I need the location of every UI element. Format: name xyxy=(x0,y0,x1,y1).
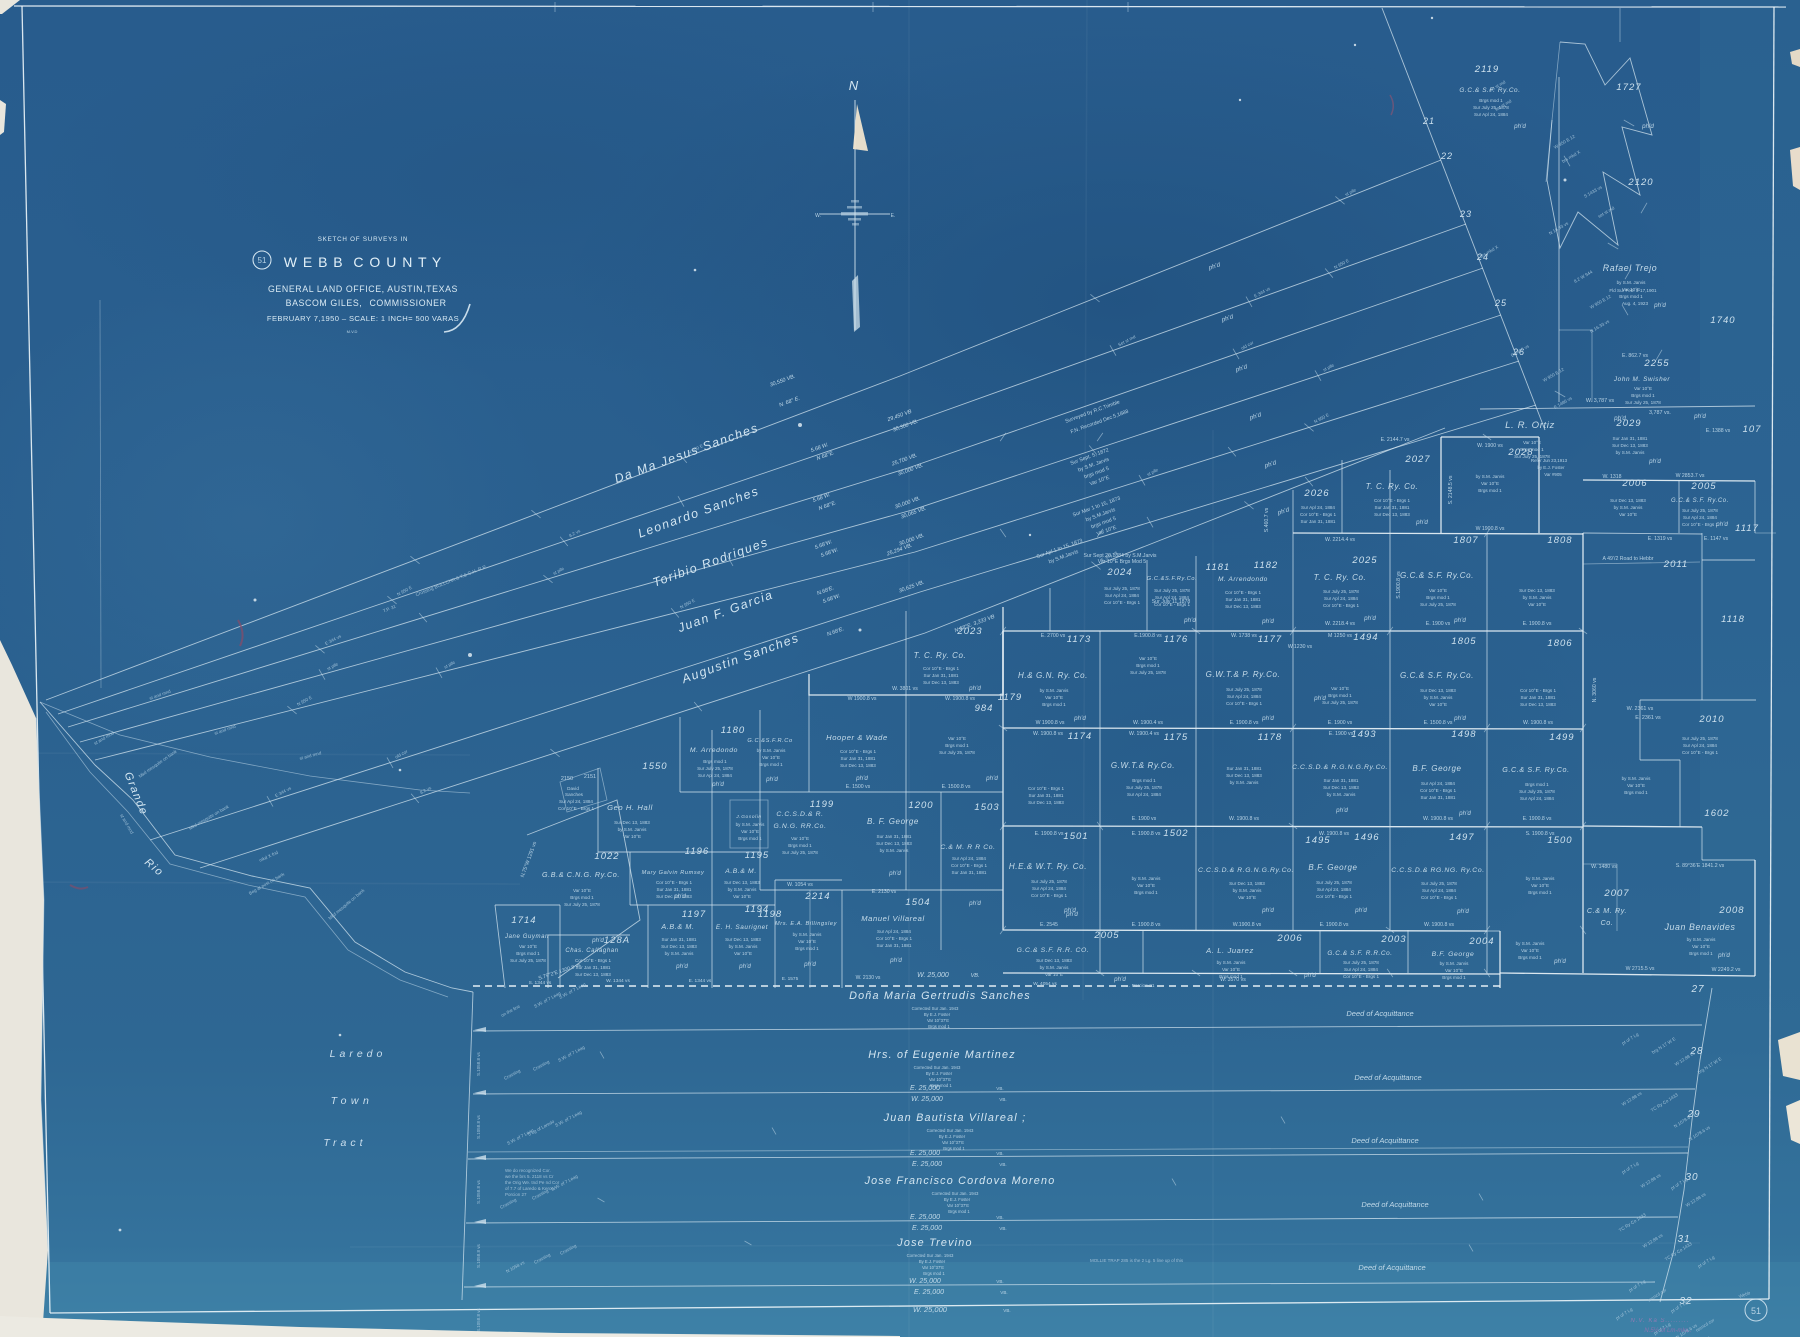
svg-text:ph’d: ph’d xyxy=(1456,908,1469,915)
svg-text:G.C.& S.F. R.R. CO.: G.C.& S.F. R.R. CO. xyxy=(1017,947,1090,954)
svg-text:Corrected Sur Jan. 1943: Corrected Sur Jan. 1943 xyxy=(927,1128,974,1133)
svg-text:Var 10°E: Var 10°E xyxy=(1139,656,1157,661)
svg-text:Mary Galvin Rumsey: Mary Galvin Rumsey xyxy=(642,870,705,876)
svg-text:1740: 1740 xyxy=(1710,315,1735,326)
svg-text:S. 89°36’E 1841.2 vs: S. 89°36’E 1841.2 vs xyxy=(1676,863,1725,869)
svg-text:1496: 1496 xyxy=(1354,832,1379,843)
svg-text:Town: Town xyxy=(331,1095,374,1107)
svg-text:E. H. Saurignet: E. H. Saurignet xyxy=(716,924,768,931)
svg-text:Corrected Sur Jan. 1943: Corrected Sur Jan. 1943 xyxy=(907,1253,954,1258)
svg-text:Brgs mod 1: Brgs mod 1 xyxy=(795,946,819,951)
svg-text:1176: 1176 xyxy=(1164,634,1188,645)
svg-text:Var 10°E: Var 10°E xyxy=(1445,968,1463,973)
svg-text:Cor 10°E - Brgs 1: Cor 10°E - Brgs 1 xyxy=(1682,750,1718,755)
svg-text:Sur July 11,1878: Sur July 11,1878 xyxy=(1152,599,1191,605)
svg-text:Cor 10°E - Brgs 1: Cor 10°E - Brgs 1 xyxy=(876,936,912,941)
svg-text:Sur Apl 24, 1884: Sur Apl 24, 1884 xyxy=(1317,887,1351,892)
svg-text:Cor 10°E - Brgs 1: Cor 10°E - Brgs 1 xyxy=(1031,893,1067,898)
svg-text:Deed of Acquittance: Deed of Acquittance xyxy=(1346,1009,1413,1018)
svg-text:2027: 2027 xyxy=(1404,454,1430,465)
svg-text:2214: 2214 xyxy=(804,891,830,902)
svg-text:Sur July 25, 1878: Sur July 25, 1878 xyxy=(1154,588,1190,593)
svg-text:1727: 1727 xyxy=(1616,82,1641,93)
svg-text:Brgs mod 1: Brgs mod 1 xyxy=(928,1024,950,1029)
svg-text:S.1900.8 vs: S.1900.8 vs xyxy=(1396,571,1402,599)
svg-text:ph’d: ph’d xyxy=(1453,617,1466,624)
svg-text:Sur July 25, 1878: Sur July 25, 1878 xyxy=(510,958,546,963)
svg-text:Var 10°E: Var 10°E xyxy=(623,834,641,839)
svg-text:We do recognized Cor.: We do recognized Cor. xyxy=(505,1168,551,1173)
svg-text:W. 1900.8 vs: W. 1900.8 vs xyxy=(1423,816,1453,822)
svg-text:1805: 1805 xyxy=(1451,636,1476,647)
svg-text:Sur Dec 13, 1883: Sur Dec 13, 1883 xyxy=(1612,443,1648,448)
svg-text:Sur Dec 13, 1883: Sur Dec 13, 1883 xyxy=(1323,785,1359,790)
svg-text:Brgs mod 1: Brgs mod 1 xyxy=(1134,890,1158,895)
svg-text:Sur Dec 13, 1883: Sur Dec 13, 1883 xyxy=(923,680,959,685)
svg-text:W E B B C O U N T Y: W E B B C O U N T Y xyxy=(284,254,442,270)
svg-text:Sur July 25, 1878: Sur July 25, 1878 xyxy=(1104,586,1140,591)
svg-text:Sur July 25, 1878: Sur July 25, 1878 xyxy=(782,850,818,855)
svg-text:Sur Apl 24, 1884: Sur Apl 24, 1884 xyxy=(1422,888,1456,893)
svg-text:ph’d: ph’d xyxy=(889,957,902,964)
svg-text:by S.M. Jarvis: by S.M. Jarvis xyxy=(1040,688,1070,693)
svg-text:B.F. George: B.F. George xyxy=(1412,764,1461,773)
svg-text:B.F. George: B.F. George xyxy=(1308,863,1357,872)
svg-text:W. 2218.4 vs: W. 2218.4 vs xyxy=(1325,621,1355,627)
svg-text:ph’d: ph’d xyxy=(803,961,816,968)
svg-text:COMMISSIONER: COMMISSIONER xyxy=(369,298,446,308)
svg-text:by S.M. Jarvis: by S.M. Jarvis xyxy=(1476,474,1506,479)
svg-text:Sur July 25, 1878: Sur July 25, 1878 xyxy=(939,750,975,755)
svg-text:ph’d: ph’d xyxy=(1183,617,1196,624)
svg-text:E. 2144.7 vs: E. 2144.7 vs xyxy=(1381,437,1410,443)
svg-text:Sur Dec 13, 1883: Sur Dec 13, 1883 xyxy=(575,972,611,977)
svg-text:Var 10°E: Var 10°E xyxy=(1045,972,1063,977)
svg-text:Sur Jan 31, 1881: Sur Jan 31, 1881 xyxy=(924,673,959,678)
svg-text:S.1058.8 vs: S.1058.8 vs xyxy=(476,1179,481,1204)
svg-text:Corrected Sur Jan. 1943: Corrected Sur Jan. 1943 xyxy=(914,1065,961,1070)
svg-text:A.B.& M.: A.B.& M. xyxy=(660,922,694,931)
svg-text:H.E.& W.T. Rу. Co.: H.E.& W.T. Rу. Co. xyxy=(1009,862,1087,871)
svg-text:E. 1900.8 vs: E. 1900.8 vs xyxy=(1035,831,1064,837)
svg-text:1181: 1181 xyxy=(1206,562,1230,573)
svg-text:1180: 1180 xyxy=(721,725,745,736)
svg-text:Sur July 25, 1878: Sur July 25, 1878 xyxy=(1682,508,1718,513)
svg-text:3,787 vs.: 3,787 vs. xyxy=(1649,410,1671,416)
svg-text:Sur July 25, 1878: Sur July 25, 1878 xyxy=(1343,960,1379,965)
svg-text:Brgs mod 1: Brgs mod 1 xyxy=(948,1209,970,1214)
svg-text:by S.M. Jarvis: by S.M. Jarvis xyxy=(1526,876,1556,881)
svg-text:C.C.S.D.& R.G.N.G.Rу.Co.: C.C.S.D.& R.G.N.G.Rу.Co. xyxy=(1292,764,1388,771)
svg-text:Brgs mod 1: Brgs mod 1 xyxy=(788,843,812,848)
svg-text:ph’d: ph’d xyxy=(1335,807,1348,814)
svg-text:51: 51 xyxy=(258,256,267,265)
svg-text:B. F. George: B. F. George xyxy=(867,817,919,826)
svg-text:Sur Jan 31, 1881: Sur Jan 31, 1881 xyxy=(1029,793,1064,798)
svg-text:H.& G.N. Rу. Co.: H.& G.N. Rу. Co. xyxy=(1018,671,1088,680)
svg-text:E. 25,000: E. 25,000 xyxy=(910,1214,940,1221)
svg-text:W. 1900.8 vs: W. 1900.8 vs xyxy=(1319,831,1349,837)
svg-text:by S.M. Jarvis: by S.M. Jarvis xyxy=(1040,965,1070,970)
svg-text:1502: 1502 xyxy=(1163,828,1188,839)
svg-text:Var 10°E: Var 10°E xyxy=(1429,588,1447,593)
svg-text:Brgs mod 1: Brgs mod 1 xyxy=(1426,595,1450,600)
svg-text:A.B.& M.: A.B.& M. xyxy=(724,868,757,875)
svg-text:G.C.& S.F. Rу.Co.: G.C.& S.F. Rу.Co. xyxy=(1502,765,1570,774)
svg-text:Var 10°37’E: Var 10°37’E xyxy=(942,1140,964,1145)
svg-text:Sur Dec 13, 1883: Sur Dec 13, 1883 xyxy=(1519,588,1555,593)
svg-text:W. 1900.8 vs: W. 1900.8 vs xyxy=(1033,731,1063,737)
svg-text:Brgs mod 1: Brgs mod 1 xyxy=(1619,294,1643,299)
svg-text:S. 2148.5 vs: S. 2148.5 vs xyxy=(1448,475,1454,504)
svg-text:Sur July 25, 1878: Sur July 25, 1878 xyxy=(697,766,733,771)
svg-text:ph’d: ph’d xyxy=(1715,521,1728,528)
svg-text:E. 2130 vs: E. 2130 vs xyxy=(872,889,897,895)
svg-text:Sur Dec 13, 1883: Sur Dec 13, 1883 xyxy=(1225,604,1261,609)
svg-text:by E.J. Foster: by E.J. Foster xyxy=(1537,465,1565,470)
svg-text:ph’d: ph’d xyxy=(888,870,901,877)
svg-text:VB.: VB. xyxy=(1003,1308,1010,1313)
svg-text:ph’d: ph’d xyxy=(1641,123,1654,130)
svg-text:Corrected Sur Jan. 1943: Corrected Sur Jan. 1943 xyxy=(932,1191,979,1196)
svg-text:E. 1575: E. 1575 xyxy=(782,976,799,982)
svg-text:ph’d: ph’d xyxy=(1453,715,1466,722)
svg-text:Var 10°E: Var 10°E xyxy=(791,836,809,841)
svg-text:Sur Dec 13, 1883: Sur Dec 13, 1883 xyxy=(1226,773,1262,778)
svg-text:ph’d: ph’d xyxy=(1261,907,1274,914)
svg-text:ph’d: ph’d xyxy=(1513,123,1526,130)
svg-text:M. Arrendondo: M. Arrendondo xyxy=(1218,576,1268,583)
svg-text:ph’d: ph’d xyxy=(1313,695,1326,702)
svg-text:M.V.D: M.V.D xyxy=(347,329,358,334)
svg-text:Var 10°E: Var 10°E xyxy=(762,755,780,760)
svg-text:1174: 1174 xyxy=(1068,731,1092,742)
svg-text:By E.J. Foster: By E.J. Foster xyxy=(944,1197,971,1202)
svg-text:2151: 2151 xyxy=(584,774,596,780)
svg-text:by S.M. Jarvis: by S.M. Jarvis xyxy=(1230,780,1260,785)
svg-text:ph’d: ph’d xyxy=(968,900,981,907)
svg-text:27: 27 xyxy=(1690,984,1704,995)
svg-text:Sur Apl 24, 1884: Sur Apl 24, 1884 xyxy=(1344,967,1378,972)
svg-text:W. 2130 vs: W. 2130 vs xyxy=(856,975,881,981)
svg-text:2004: 2004 xyxy=(1468,936,1494,947)
svg-text:1808: 1808 xyxy=(1547,535,1572,546)
svg-text:1179: 1179 xyxy=(998,692,1022,703)
svg-text:Sur Dec 13, 1883: Sur Dec 13, 1883 xyxy=(1374,512,1410,517)
svg-text:W. 1900.8 vs: W. 1900.8 vs xyxy=(945,696,975,702)
svg-text:Sur Apl 24, 1884: Sur Apl 24, 1884 xyxy=(877,929,911,934)
svg-text:Cor 10°E - Brgs 1: Cor 10°E - Brgs 1 xyxy=(951,863,987,868)
svg-text:Var 10°E: Var 10°E xyxy=(1238,895,1256,900)
svg-text:Brgs mod 1: Brgs mod 1 xyxy=(1136,663,1160,668)
svg-text:2026: 2026 xyxy=(1303,488,1329,499)
svg-text:Deed of Acquittance: Deed of Acquittance xyxy=(1361,1200,1428,1209)
svg-text:984: 984 xyxy=(975,703,994,714)
svg-text:the Orig We. tnd Pe nd Cor: the Orig We. tnd Pe nd Cor xyxy=(505,1180,560,1185)
svg-text:E. 862.7 vs: E. 862.7 vs xyxy=(1622,353,1648,359)
svg-text:Sur Jan 31, 1881: Sur Jan 31, 1881 xyxy=(1227,766,1262,771)
svg-text:Rafael Trejo: Rafael Trejo xyxy=(1603,263,1657,273)
svg-text:Sur Dec 13, 1883: Sur Dec 13, 1883 xyxy=(1520,702,1556,707)
svg-text:W 1900.8 vs: W 1900.8 vs xyxy=(1036,720,1065,726)
svg-text:M 1250 vs: M 1250 vs xyxy=(1328,633,1352,639)
svg-text:Brgs mod 1: Brgs mod 1 xyxy=(1328,693,1352,698)
svg-text:ph’d: ph’d xyxy=(1717,952,1730,959)
svg-text:S.460.7 vs: S.460.7 vs xyxy=(1264,507,1270,532)
svg-text:by S.M. Jarvis: by S.M. Jarvis xyxy=(757,748,787,753)
svg-text:Sur July 25, 1878: Sur July 25, 1878 xyxy=(1316,880,1352,885)
svg-text:1118: 1118 xyxy=(1721,614,1745,625)
svg-text:W. 3570 vs: W. 3570 vs xyxy=(1220,977,1246,983)
svg-text:E. 1900.8 vs: E. 1900.8 vs xyxy=(1132,922,1161,928)
svg-text:1503: 1503 xyxy=(974,802,999,813)
svg-text:2150: 2150 xyxy=(561,776,573,782)
svg-text:E. 25,000: E. 25,000 xyxy=(912,1225,942,1232)
svg-text:by S.M. Jarvis: by S.M. Jarvis xyxy=(665,951,695,956)
svg-text:ph’d: ph’d xyxy=(738,963,751,970)
svg-text:1117: 1117 xyxy=(1735,523,1759,534)
svg-text:W. 1900.8 vs: W. 1900.8 vs xyxy=(1229,816,1259,822)
svg-text:M. Arredondo: M. Arredondo xyxy=(690,747,738,754)
svg-text:1497: 1497 xyxy=(1449,832,1474,843)
svg-text:David: David xyxy=(567,786,579,791)
svg-text:Geo H. Hall: Geo H. Hall xyxy=(607,803,653,812)
svg-text:W. 2214.4 vs: W. 2214.4 vs xyxy=(1325,537,1355,543)
svg-text:Sur Dec 13, 1883: Sur Dec 13, 1883 xyxy=(724,880,760,885)
svg-text:2007: 2007 xyxy=(1603,888,1629,899)
svg-text:C.& M. Rу.: C.& M. Rу. xyxy=(1587,906,1627,915)
svg-text:Var 10°E: Var 10°E xyxy=(1528,602,1546,607)
svg-text:by S.M. Jarvis: by S.M. Jarvis xyxy=(1440,961,1470,966)
svg-text:Hooper & Wade: Hooper & Wade xyxy=(826,733,888,742)
svg-text:Sur Jan 31, 1881: Sur Jan 31, 1881 xyxy=(1421,795,1456,800)
svg-text:Chas. Callaghan: Chas. Callaghan xyxy=(565,948,618,954)
svg-text:Refer Jun 23,1913: Refer Jun 23,1913 xyxy=(1531,458,1568,463)
svg-text:Sur Apl 24, 1884: Sur Apl 24, 1884 xyxy=(559,799,593,804)
svg-text:ph’d: ph’d xyxy=(1073,715,1086,722)
svg-text:Sur Jan 31, 1881: Sur Jan 31, 1881 xyxy=(877,943,912,948)
svg-text:Sur Apl 24, 1884: Sur Apl 24, 1884 xyxy=(1683,515,1717,520)
svg-text:ph’d: ph’d xyxy=(855,775,868,782)
svg-text:W. 25,000: W. 25,000 xyxy=(917,972,949,979)
svg-text:Brgs mod 1: Brgs mod 1 xyxy=(1689,951,1713,956)
svg-text:E. 25,000: E. 25,000 xyxy=(914,1289,944,1296)
svg-text:Var 10°E Brgs Mod 5: Var 10°E Brgs Mod 5 xyxy=(1098,559,1147,565)
svg-text:E. 1344 vs: E. 1344 vs xyxy=(689,978,712,984)
svg-text:Brgs mod 1: Brgs mod 1 xyxy=(1042,702,1066,707)
svg-text:E. 1900.8 vs: E. 1900.8 vs xyxy=(1132,831,1161,837)
svg-text:N: N xyxy=(849,78,859,93)
svg-text:Sur July 25, 1878: Sur July 25, 1878 xyxy=(1126,785,1162,790)
svg-text:Cor 10°E - Brgs 1: Cor 10°E - Brgs 1 xyxy=(1682,522,1718,527)
svg-text:Sur Dec 13, 1883: Sur Dec 13, 1883 xyxy=(614,820,650,825)
svg-text:Brgs mod 1: Brgs mod 1 xyxy=(1624,790,1648,795)
svg-text:Cor 10°E - Brgs 1: Cor 10°E - Brgs 1 xyxy=(1316,894,1352,899)
svg-text:Hrs. of Eugenie Martinez: Hrs. of Eugenie Martinez xyxy=(868,1049,1016,1061)
svg-text:Jane Guyman: Jane Guyman xyxy=(504,934,549,940)
svg-text:E. 2545: E. 2545 xyxy=(1040,922,1058,928)
svg-text:By E.J. Foster: By E.J. Foster xyxy=(919,1259,946,1264)
svg-text:W. 1054 vs: W. 1054 vs xyxy=(787,882,813,888)
svg-text:Cor 10°E - Brgs 1: Cor 10°E - Brgs 1 xyxy=(1104,600,1140,605)
svg-text:2024: 2024 xyxy=(1106,567,1132,578)
svg-text:VB.: VB. xyxy=(996,1215,1003,1220)
svg-text:by S.M. Jarvis: by S.M. Jarvis xyxy=(793,932,823,937)
svg-text:1198: 1198 xyxy=(758,909,782,920)
svg-text:Cor 10°E - Brgs 1: Cor 10°E - Brgs 1 xyxy=(1374,498,1410,503)
svg-text:C.C.S.D.& R.: C.C.S.D.& R. xyxy=(776,811,823,818)
svg-text:by S.M. Jarvis: by S.M. Jarvis xyxy=(1523,595,1553,600)
svg-text:Sur Dec 13, 1883: Sur Dec 13, 1883 xyxy=(1420,688,1456,693)
svg-text:Sur July 25, 1878: Sur July 25, 1878 xyxy=(1130,670,1166,675)
svg-text:Var 10°37’E: Var 10°37’E xyxy=(947,1203,969,1208)
svg-text:Manuel Villareal: Manuel Villareal xyxy=(861,914,925,923)
svg-text:1499: 1499 xyxy=(1549,732,1574,743)
svg-text:Sur Jan 31, 1881: Sur Jan 31, 1881 xyxy=(1613,436,1648,441)
svg-text:Var 10°E: Var 10°E xyxy=(948,736,966,741)
svg-text:Sur Apl 24, 1884: Sur Apl 24, 1884 xyxy=(1032,886,1066,891)
svg-text:by S.M. Jarvis: by S.M. Jarvis xyxy=(729,944,759,949)
svg-text:John M. Swisher: John M. Swisher xyxy=(1613,376,1671,383)
svg-text:Cor 10°E - Brgs 1: Cor 10°E - Brgs 1 xyxy=(840,749,876,754)
svg-text:2023: 2023 xyxy=(956,626,982,637)
svg-text:Var 10°E: Var 10°E xyxy=(733,894,751,899)
svg-text:by S.M. Jarvis: by S.M. Jarvis xyxy=(1132,876,1162,881)
svg-text:N.V. Ka S.........: N.V. Ka S......... xyxy=(1631,1318,1690,1324)
svg-text:E. 1900 vs: E. 1900 vs xyxy=(1132,816,1157,822)
svg-text:Brgs mod 1: Brgs mod 1 xyxy=(1518,955,1542,960)
svg-text:S.1058.8 vs: S.1058.8 vs xyxy=(476,1307,481,1332)
svg-text:E.1900.8 vs: E.1900.8 vs xyxy=(1134,633,1162,639)
svg-text:ph’d: ph’d xyxy=(1261,618,1274,625)
svg-text:Var 10°E: Var 10°E xyxy=(1137,883,1155,888)
svg-text:by S.M. Jarvis: by S.M. Jarvis xyxy=(1217,960,1247,965)
svg-text:by S.M. Jarvis: by S.M. Jarvis xyxy=(1516,941,1546,946)
svg-text:Sur Jan 31, 1881: Sur Jan 31, 1881 xyxy=(1521,695,1556,700)
svg-text:ph’d: ph’d xyxy=(1303,972,1316,979)
svg-text:VB.: VB. xyxy=(996,1151,1003,1156)
svg-text:W. 1900 vs: W. 1900 vs xyxy=(1477,443,1503,449)
svg-text:Tract: Tract xyxy=(323,1137,366,1149)
svg-text:E. 1147 vs: E. 1147 vs xyxy=(1704,536,1729,542)
svg-text:S.1058.8 vs: S.1058.8 vs xyxy=(476,1243,481,1268)
svg-text:2006: 2006 xyxy=(1276,933,1302,944)
svg-text:2120: 2120 xyxy=(1627,177,1653,188)
svg-text:B.F. George: B.F. George xyxy=(1432,951,1475,958)
svg-text:Brgs mod 1: Brgs mod 1 xyxy=(703,759,727,764)
svg-text:W 1900.8 vs: W 1900.8 vs xyxy=(848,696,877,702)
svg-text:Laredo: Laredo xyxy=(330,1048,387,1060)
svg-text:1195: 1195 xyxy=(745,850,769,861)
svg-text:Cor 10°E - Brgs 1: Cor 10°E - Brgs 1 xyxy=(1520,688,1556,693)
svg-text:Brgs mod 1: Brgs mod 1 xyxy=(1442,975,1466,980)
svg-text:ph’d: ph’d xyxy=(1693,413,1706,420)
svg-text:Sur Apl 24, 1884: Sur Apl 24, 1884 xyxy=(1127,792,1161,797)
svg-text:1199: 1199 xyxy=(810,799,834,810)
svg-text:Brgs mod 1: Brgs mod 1 xyxy=(738,836,762,841)
svg-text:Brgs mod 1: Brgs mod 1 xyxy=(516,951,540,956)
svg-text:Sur July 25, 1878: Sur July 25, 1878 xyxy=(1031,879,1067,884)
svg-text:2119: 2119 xyxy=(1474,64,1499,75)
svg-text:by S.M. Jarvis: by S.M. Jarvis xyxy=(1617,280,1647,285)
svg-text:Brgs mod 1: Brgs mod 1 xyxy=(923,1271,945,1276)
svg-text:ph’d: ph’d xyxy=(1261,715,1274,722)
svg-text:Var 10°E: Var 10°E xyxy=(1627,783,1645,788)
svg-text:Sur Jan 31, 1881: Sur Jan 31, 1881 xyxy=(576,965,611,970)
svg-text:Juan Benavides: Juan Benavides xyxy=(1663,922,1735,932)
svg-text:MOLLIE TRAP 285 is the 2 Lg. 5: MOLLIE TRAP 285 is the 2 Lg. 5 line up o… xyxy=(1090,1258,1184,1263)
svg-text:Sur Apl 24, 1884: Sur Apl 24, 1884 xyxy=(952,856,986,861)
svg-text:W.1230 vs: W.1230 vs xyxy=(1288,644,1313,650)
svg-text:Sur Jan 31, 1881: Sur Jan 31, 1881 xyxy=(1324,778,1359,783)
svg-text:N. 3060 vs: N. 3060 vs xyxy=(1592,677,1598,702)
svg-text:E. 1900.8 vs: E. 1900.8 vs xyxy=(1230,720,1259,726)
svg-text:E. 2700 vs: E. 2700 vs xyxy=(1041,633,1066,639)
svg-text:VB.: VB. xyxy=(996,1279,1003,1284)
svg-text:Deed of Acquittance: Deed of Acquittance xyxy=(1351,1136,1418,1145)
svg-text:by S.M. Jarvis: by S.M. Jarvis xyxy=(618,827,648,832)
svg-text:Brgs mod 1: Brgs mod 1 xyxy=(1631,393,1655,398)
svg-text:1498: 1498 xyxy=(1451,729,1476,740)
svg-text:Var 10°37’E: Var 10°37’E xyxy=(929,1077,951,1082)
svg-text:Var 10°E: Var 10°E xyxy=(1692,944,1710,949)
svg-text:Sur Apl 24, 1884: Sur Apl 24, 1884 xyxy=(1105,593,1139,598)
svg-text:ph’d: ph’d xyxy=(1415,519,1428,526)
svg-text:1807: 1807 xyxy=(1453,535,1478,546)
svg-text:G.C.&S.F.R.Co: G.C.&S.F.R.Co xyxy=(747,738,792,744)
svg-text:G.B.& C.N.G. Rу.Co.: G.B.& C.N.G. Rу.Co. xyxy=(542,870,620,879)
svg-text:SKETCH OF SURVEYS IN: SKETCH OF SURVEYS IN xyxy=(318,236,409,243)
svg-text:23: 23 xyxy=(1459,209,1472,219)
svg-text:Sur Jan 31, 1881: Sur Jan 31, 1881 xyxy=(877,834,912,839)
svg-text:ph’d: ph’d xyxy=(765,776,778,783)
svg-text:W 1900.8 vs: W 1900.8 vs xyxy=(1476,526,1505,532)
svg-text:E.: E. xyxy=(891,213,896,219)
svg-text:W.: W. xyxy=(815,213,821,219)
svg-text:2008: 2008 xyxy=(1718,905,1744,916)
svg-text:E. 1900 vs: E. 1900 vs xyxy=(1426,621,1451,627)
svg-text:Brgs mod 1: Brgs mod 1 xyxy=(759,762,783,767)
svg-text:W. 2361 vs: W. 2361 vs xyxy=(1627,706,1654,712)
svg-text:By E.J. Foster: By E.J. Foster xyxy=(926,1071,953,1076)
svg-text:W. 1480 vs: W. 1480 vs xyxy=(1591,864,1617,870)
svg-text:Var 10°E: Var 10°E xyxy=(1521,948,1539,953)
svg-text:E. 2361 vs: E. 2361 vs xyxy=(1635,715,1661,721)
svg-text:1196: 1196 xyxy=(685,846,709,857)
svg-text:Brgs mod 1: Brgs mod 1 xyxy=(945,743,969,748)
svg-text:ph’d: ph’d xyxy=(675,963,688,970)
svg-text:Cor 10°E - Brgs 1: Cor 10°E - Brgs 1 xyxy=(1343,974,1379,979)
svg-text:Cor 10°E - Brgs 1: Cor 10°E - Brgs 1 xyxy=(1420,788,1456,793)
svg-text:Sur July 25, 1878: Sur July 25, 1878 xyxy=(564,902,600,907)
svg-text:Var 10°E: Var 10°E xyxy=(1481,481,1499,486)
svg-text:Brgs mod 1: Brgs mod 1 xyxy=(1132,778,1156,783)
svg-text:1022: 1022 xyxy=(594,851,619,862)
svg-text:1177: 1177 xyxy=(1258,634,1282,645)
svg-text:ph’d: ph’d xyxy=(1613,415,1626,422)
svg-text:by S.M. Jarvis: by S.M. Jarvis xyxy=(736,822,766,827)
svg-text:Sur July 25, 1878: Sur July 25, 1878 xyxy=(1226,687,1262,692)
svg-text:VB.: VB. xyxy=(996,1086,1003,1091)
svg-text:E. 1900 vs: E. 1900 vs xyxy=(1328,720,1353,726)
svg-text:1806: 1806 xyxy=(1547,638,1572,649)
svg-text:Sur July 25, 1878: Sur July 25, 1878 xyxy=(1519,789,1555,794)
svg-text:E. 1500 vs: E. 1500 vs xyxy=(846,784,871,790)
svg-text:E. 25,000: E. 25,000 xyxy=(910,1085,940,1092)
svg-text:Sur Jan 31, 1881: Sur Jan 31, 1881 xyxy=(1226,597,1261,602)
svg-text:Sur Apl 24, 1884: Sur Apl 24, 1884 xyxy=(698,773,732,778)
svg-text:Sur Dec 13, 1883: Sur Dec 13, 1883 xyxy=(1028,800,1064,805)
